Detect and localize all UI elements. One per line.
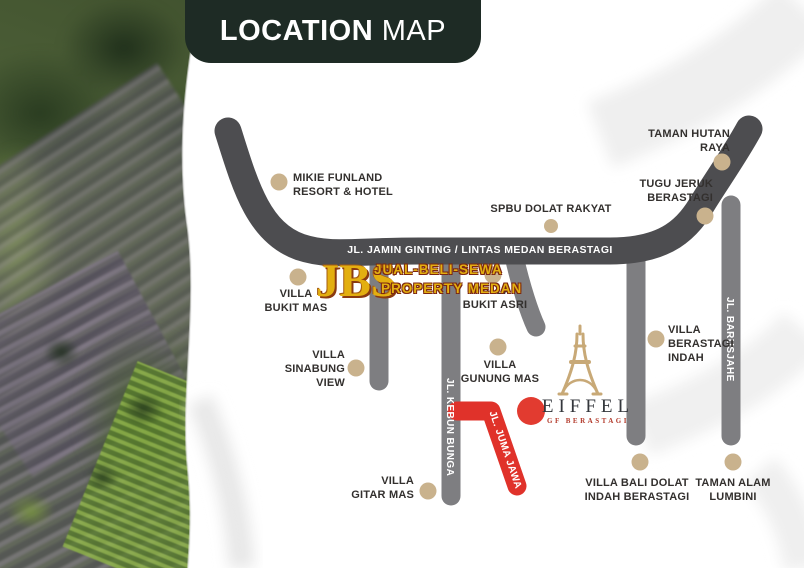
brand-name: EIFFEL [540, 396, 636, 418]
watermark-line2: PROPERTY MEDAN [381, 281, 522, 296]
poi-dot-villa-sinabung-view [348, 360, 365, 377]
poi-label-taman-alam-lumbini: TAMAN ALAM LUMBINI [673, 476, 793, 504]
poi-label-villa-sinabung-view: VILLA SINABUNG VIEW [285, 348, 345, 390]
poi-dot-villa-bukit-mas [290, 269, 307, 286]
eiffel-tower-icon [550, 324, 610, 400]
poi-label-taman-hutan-raya: TAMAN HUTAN RAYA [648, 127, 730, 155]
poi-dot-villa-gitar-mas [420, 483, 437, 500]
poi-dot-spbu [544, 219, 558, 233]
poi-dot-villa-gunung-mas [490, 339, 507, 356]
poi-label-villa-gitar-mas: VILLA GITAR MAS [351, 474, 414, 502]
poi-label-villa-berastagi-indah: VILLA BERASTAGI INDAH [668, 323, 734, 365]
title-box: LOCATION MAP [185, 0, 481, 63]
poi-label-villa-gunung-mas: VILLA GUNUNG MAS [440, 358, 560, 386]
poi-label-tugu-jeruk: TUGU JERUK BERASTAGI [639, 177, 713, 205]
poi-dot-villa-bali-dolat [632, 454, 649, 471]
poi-label-mikie-funland: MIKIE FUNLAND RESORT & HOTEL [293, 171, 393, 199]
watermark-line1: JUAL-BELI-SEWA [374, 262, 503, 277]
poi-label-spbu: SPBU DOLAT RAKYAT [451, 202, 651, 216]
poi-dot-villa-berastagi-indah [648, 331, 665, 348]
poi-dot-taman-hutan-raya [714, 154, 731, 171]
poi-dot-tugu-jeruk [697, 208, 714, 225]
page-title-light: MAP [382, 15, 446, 48]
brand-subtitle: GF BERASTAGI [540, 417, 636, 425]
location-map-flyer: { "title": { "bold": "LOCATION ", "regul… [0, 0, 804, 568]
page-title-bold: LOCATION [220, 15, 382, 48]
poi-dot-mikie-funland [271, 174, 288, 191]
poi-dot-taman-alam-lumbini [725, 454, 742, 471]
